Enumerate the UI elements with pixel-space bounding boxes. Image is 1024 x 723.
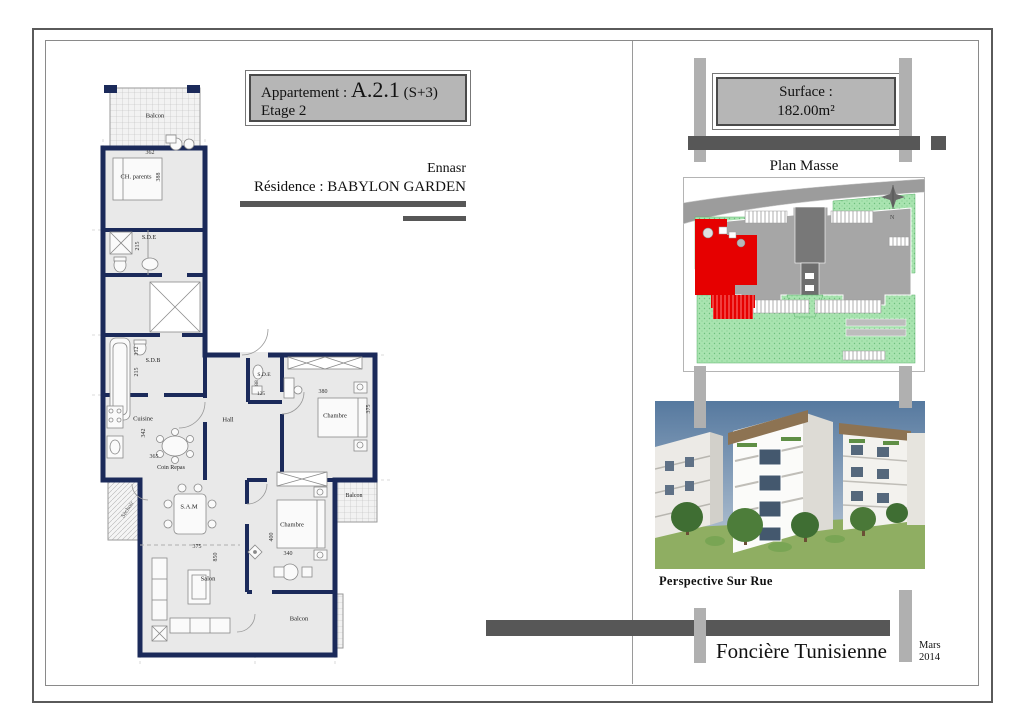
plan-masse-svg: N	[683, 177, 925, 372]
dim-342: 342	[141, 429, 147, 438]
room-label-cuisine: Cuisine	[133, 416, 153, 423]
date-month: Mars	[919, 640, 941, 652]
column-bar	[899, 366, 912, 408]
dim-400: 400	[269, 533, 275, 542]
room-label-sdb: S.D.B	[146, 358, 161, 364]
date-block: Mars 2014	[919, 640, 941, 664]
room-label-balcon-right: Balcon	[346, 493, 363, 499]
room-label-sde1: S.D.E	[142, 235, 156, 241]
dim-340: 340	[284, 551, 293, 557]
divider-bar-footer	[486, 620, 890, 636]
column-bar	[694, 608, 706, 663]
divider-bar-surface	[688, 136, 920, 150]
dim-850: 850	[213, 553, 219, 562]
room-label-chambre2: Chambre	[280, 522, 304, 529]
dim-88: 88	[254, 380, 260, 386]
divider-bar-residence-small	[403, 216, 466, 221]
floor-plan: Balcon CH. parents S.D.E S.D.B Cuisine C…	[92, 80, 407, 665]
dim-375a: 375	[366, 405, 372, 414]
dim-380: 380	[319, 389, 328, 395]
dim-365: 365	[150, 454, 159, 460]
dim-125: 125	[257, 391, 265, 397]
surface-value: 182.00m²	[718, 102, 894, 121]
dim-375b: 375	[193, 544, 202, 550]
apartment-type: (S+3)	[404, 85, 438, 101]
brochure-page: { "page": { "title_box": { "label": "App…	[0, 0, 1024, 723]
company-name: Foncière Tunisienne	[716, 639, 887, 664]
room-label-salon: Salon	[201, 576, 216, 583]
dim-388: 388	[156, 173, 162, 182]
dim-312: 312	[134, 347, 140, 356]
dim-215a: 215	[135, 242, 141, 251]
column-bar	[899, 590, 912, 662]
divider-bar-square	[931, 136, 946, 150]
vertical-divider	[632, 41, 633, 684]
plan-masse-title: Plan Masse	[683, 158, 925, 175]
svg-text:N: N	[890, 215, 895, 221]
room-label-balcon-top: Balcon	[146, 113, 164, 120]
room-label-coin-repas: Coin Repas	[157, 465, 185, 471]
date-year: 2014	[919, 652, 941, 664]
room-label-hall: Hall	[222, 417, 233, 424]
perspective-caption: Perspective Sur Rue	[659, 574, 773, 589]
room-label-sde2: S.D.E	[257, 372, 270, 378]
dim-215b: 215	[134, 368, 140, 377]
room-label-balcon-bottom: Balcon	[290, 616, 308, 623]
dim-362: 362	[146, 150, 155, 156]
room-label-sam: S.A.M	[180, 504, 197, 511]
room-label-ch-parents: CH. parents	[120, 174, 151, 181]
room-label-chambre1: Chambre	[323, 413, 347, 420]
column-bar	[694, 366, 706, 428]
plan-masse-map: N	[683, 177, 925, 372]
surface-label: Surface :	[718, 83, 894, 102]
surface-box: Surface : 182.00m²	[712, 73, 900, 130]
